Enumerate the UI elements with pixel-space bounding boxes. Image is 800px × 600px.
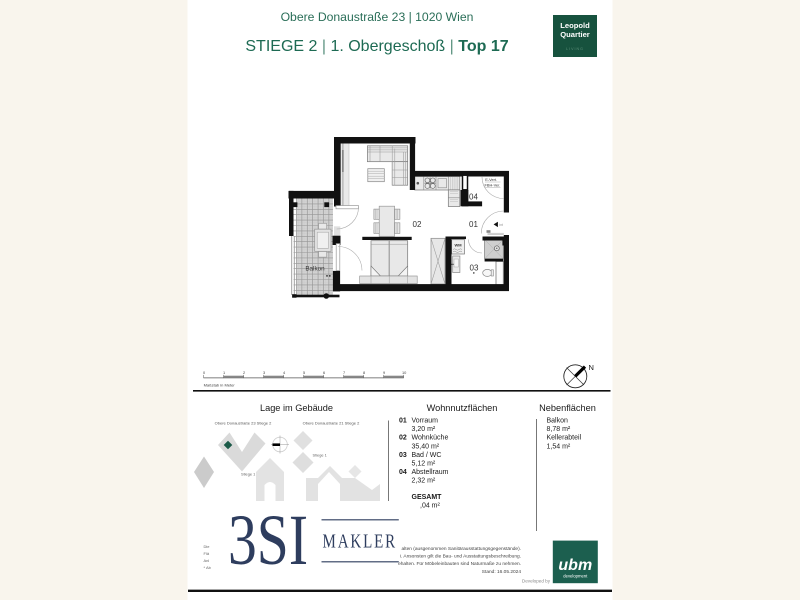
svg-text:9: 9 — [383, 370, 385, 375]
svg-text:3: 3 — [263, 370, 265, 375]
svg-text:02: 02 — [413, 220, 422, 229]
svg-text:8: 8 — [363, 370, 365, 375]
svg-text:3SI: 3SI — [228, 501, 308, 581]
svg-text:Stand: 16.05.2024: Stand: 16.05.2024 — [482, 569, 522, 575]
svg-text:Balkon: Balkon — [547, 418, 569, 425]
svg-text:Stiege 1: Stiege 1 — [313, 453, 327, 458]
svg-text:* Ab: * Ab — [204, 565, 212, 570]
svg-text:MAKLER: MAKLER — [323, 529, 398, 552]
svg-text:5,12 m²: 5,12 m² — [412, 461, 436, 468]
svg-text:Abstellraum: Abstellraum — [412, 469, 449, 476]
svg-text:Stiege 1: Stiege 1 — [241, 472, 255, 477]
svg-text:i. Ansonsten gilt die Bau- und: i. Ansonsten gilt die Bau- und Ausstattu… — [400, 554, 521, 560]
svg-text:Bad / WC: Bad / WC — [412, 452, 442, 459]
svg-text:Anl: Anl — [204, 558, 210, 563]
svg-text:2: 2 — [243, 370, 245, 375]
svg-text:Wohnnutzflächen: Wohnnutzflächen — [427, 403, 498, 413]
svg-text:GESAMT: GESAMT — [412, 494, 443, 501]
svg-text:5: 5 — [303, 370, 305, 375]
svg-text:E-Vert.: E-Vert. — [485, 177, 497, 182]
svg-text:Developed by: Developed by — [522, 579, 551, 584]
svg-text:03: 03 — [399, 452, 407, 459]
svg-text:Leopold: Leopold — [560, 21, 590, 30]
svg-text:LIVING: LIVING — [566, 47, 584, 51]
svg-text:STIEGE 2 | 1. Obergeschoß |: STIEGE 2 | 1. Obergeschoß | Top 17 — [245, 38, 508, 55]
svg-text:2,32 m²: 2,32 m² — [412, 478, 436, 485]
svg-text:01: 01 — [469, 220, 478, 229]
svg-text:Obere Donaustraße 23 Stiege 2: Obere Donaustraße 23 Stiege 2 — [215, 421, 272, 426]
svg-text:Vorraum: Vorraum — [412, 418, 439, 425]
svg-text:Die: Die — [204, 544, 211, 549]
svg-text:ubm: ubm — [558, 557, 592, 574]
svg-text:WM: WM — [454, 243, 462, 248]
svg-text:int: int — [500, 223, 503, 227]
svg-text:FBH-Ver.: FBH-Ver. — [485, 183, 501, 188]
svg-text:Flä: Flä — [204, 551, 210, 556]
svg-text:Maßstab in Meter: Maßstab in Meter — [204, 383, 236, 388]
svg-text:03: 03 — [470, 263, 479, 272]
svg-text:1,54 m²: 1,54 m² — [547, 443, 571, 450]
svg-text:35,40 m²: 35,40 m² — [412, 443, 440, 450]
svg-text:Nebenflächen: Nebenflächen — [539, 403, 596, 413]
svg-text:8,78 m²: 8,78 m² — [547, 426, 571, 433]
svg-text:Obere Donaustraße 21 Stiege 2: Obere Donaustraße 21 Stiege 2 — [303, 421, 360, 426]
svg-text:04: 04 — [469, 192, 478, 201]
svg-text:02: 02 — [399, 435, 407, 442]
svg-text:Wohnküche: Wohnküche — [412, 435, 449, 442]
svg-text:development: development — [563, 574, 588, 579]
svg-text:ehalten. Für Möbeleinbauten si: ehalten. Für Möbeleinbauten sind Naturma… — [398, 561, 521, 567]
svg-text:1: 1 — [223, 370, 225, 375]
svg-text:alten (ausgenommen Sanitärauss: alten (ausgenommen Sanitärausstattungsge… — [402, 546, 521, 552]
svg-text:3,20 m²: 3,20 m² — [412, 426, 436, 433]
svg-text:Lage im Gebäude: Lage im Gebäude — [260, 403, 333, 413]
svg-text:01: 01 — [399, 418, 407, 425]
svg-text:Quartier: Quartier — [560, 30, 590, 39]
svg-text:Obere Donaustraße 23 | 1020 Wi: Obere Donaustraße 23 | 1020 Wien — [281, 10, 474, 24]
svg-text:6: 6 — [323, 370, 325, 375]
svg-text:N: N — [589, 363, 594, 372]
svg-text:,04 m²: ,04 m² — [420, 503, 441, 510]
svg-text:Balkon: Balkon — [305, 266, 325, 273]
svg-text:04: 04 — [399, 469, 407, 476]
svg-text:7: 7 — [343, 370, 345, 375]
svg-text:Kellerabteil: Kellerabteil — [547, 435, 582, 442]
